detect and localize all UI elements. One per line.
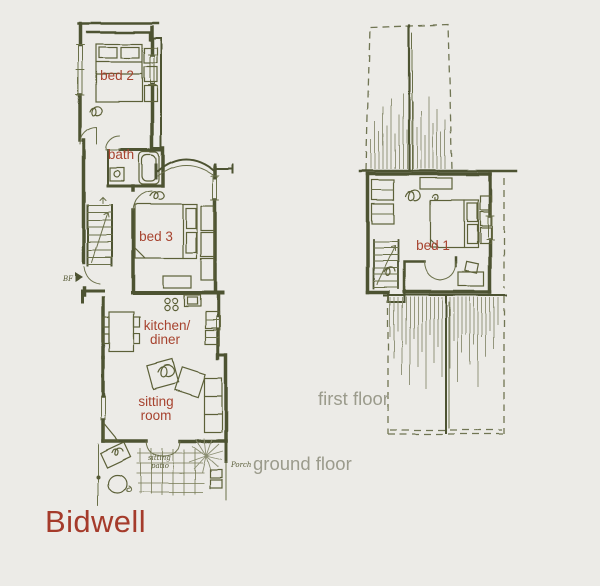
room-label-kitchen-line1: kitchen/ bbox=[144, 318, 191, 333]
roof-top bbox=[360, 24, 516, 171]
patio-garden bbox=[96, 438, 226, 505]
room-label-bed-2: bed 2 bbox=[100, 68, 134, 83]
roof-bottom bbox=[384, 295, 506, 434]
room-label-kitchen-line2: diner bbox=[150, 332, 181, 347]
caption-first-floor: first floor bbox=[318, 388, 389, 409]
lounger-scribble bbox=[112, 448, 123, 455]
bf-arrow bbox=[75, 272, 83, 282]
first-floor-plan bbox=[360, 24, 516, 434]
annotation-bf: BF bbox=[62, 275, 74, 283]
plant-icon bbox=[189, 438, 223, 473]
armchair-scribble bbox=[158, 365, 174, 377]
room-label-bed-1: bed 1 bbox=[416, 238, 450, 253]
ground-floor-plan bbox=[75, 23, 233, 505]
room-label-bed-3: bed 3 bbox=[139, 229, 173, 244]
annotation-patio-line1: sitting bbox=[148, 454, 171, 462]
property-title: Bidwell bbox=[45, 504, 146, 539]
floorplan-page: bed 2 bath bed 3 kitchen/ diner sitting … bbox=[0, 0, 600, 586]
floorplan-drawing: bed 2 bath bed 3 kitchen/ diner sitting … bbox=[0, 0, 600, 586]
room-label-sitting-line2: room bbox=[141, 408, 172, 423]
annotation-porch: Porch bbox=[230, 461, 251, 469]
room-label-sitting-line1: sitting bbox=[138, 394, 173, 409]
caption-ground-floor: ground floor bbox=[253, 453, 352, 474]
plant-scribble bbox=[90, 107, 102, 116]
hall-stairs bbox=[75, 140, 112, 295]
ceiling-scribble bbox=[150, 192, 164, 200]
chair-scribble bbox=[406, 190, 420, 200]
annotation-patio-line2: patio bbox=[151, 462, 169, 470]
labels: bed 2 bath bed 3 kitchen/ diner sitting … bbox=[45, 68, 450, 539]
room-label-bath: bath bbox=[108, 147, 134, 162]
